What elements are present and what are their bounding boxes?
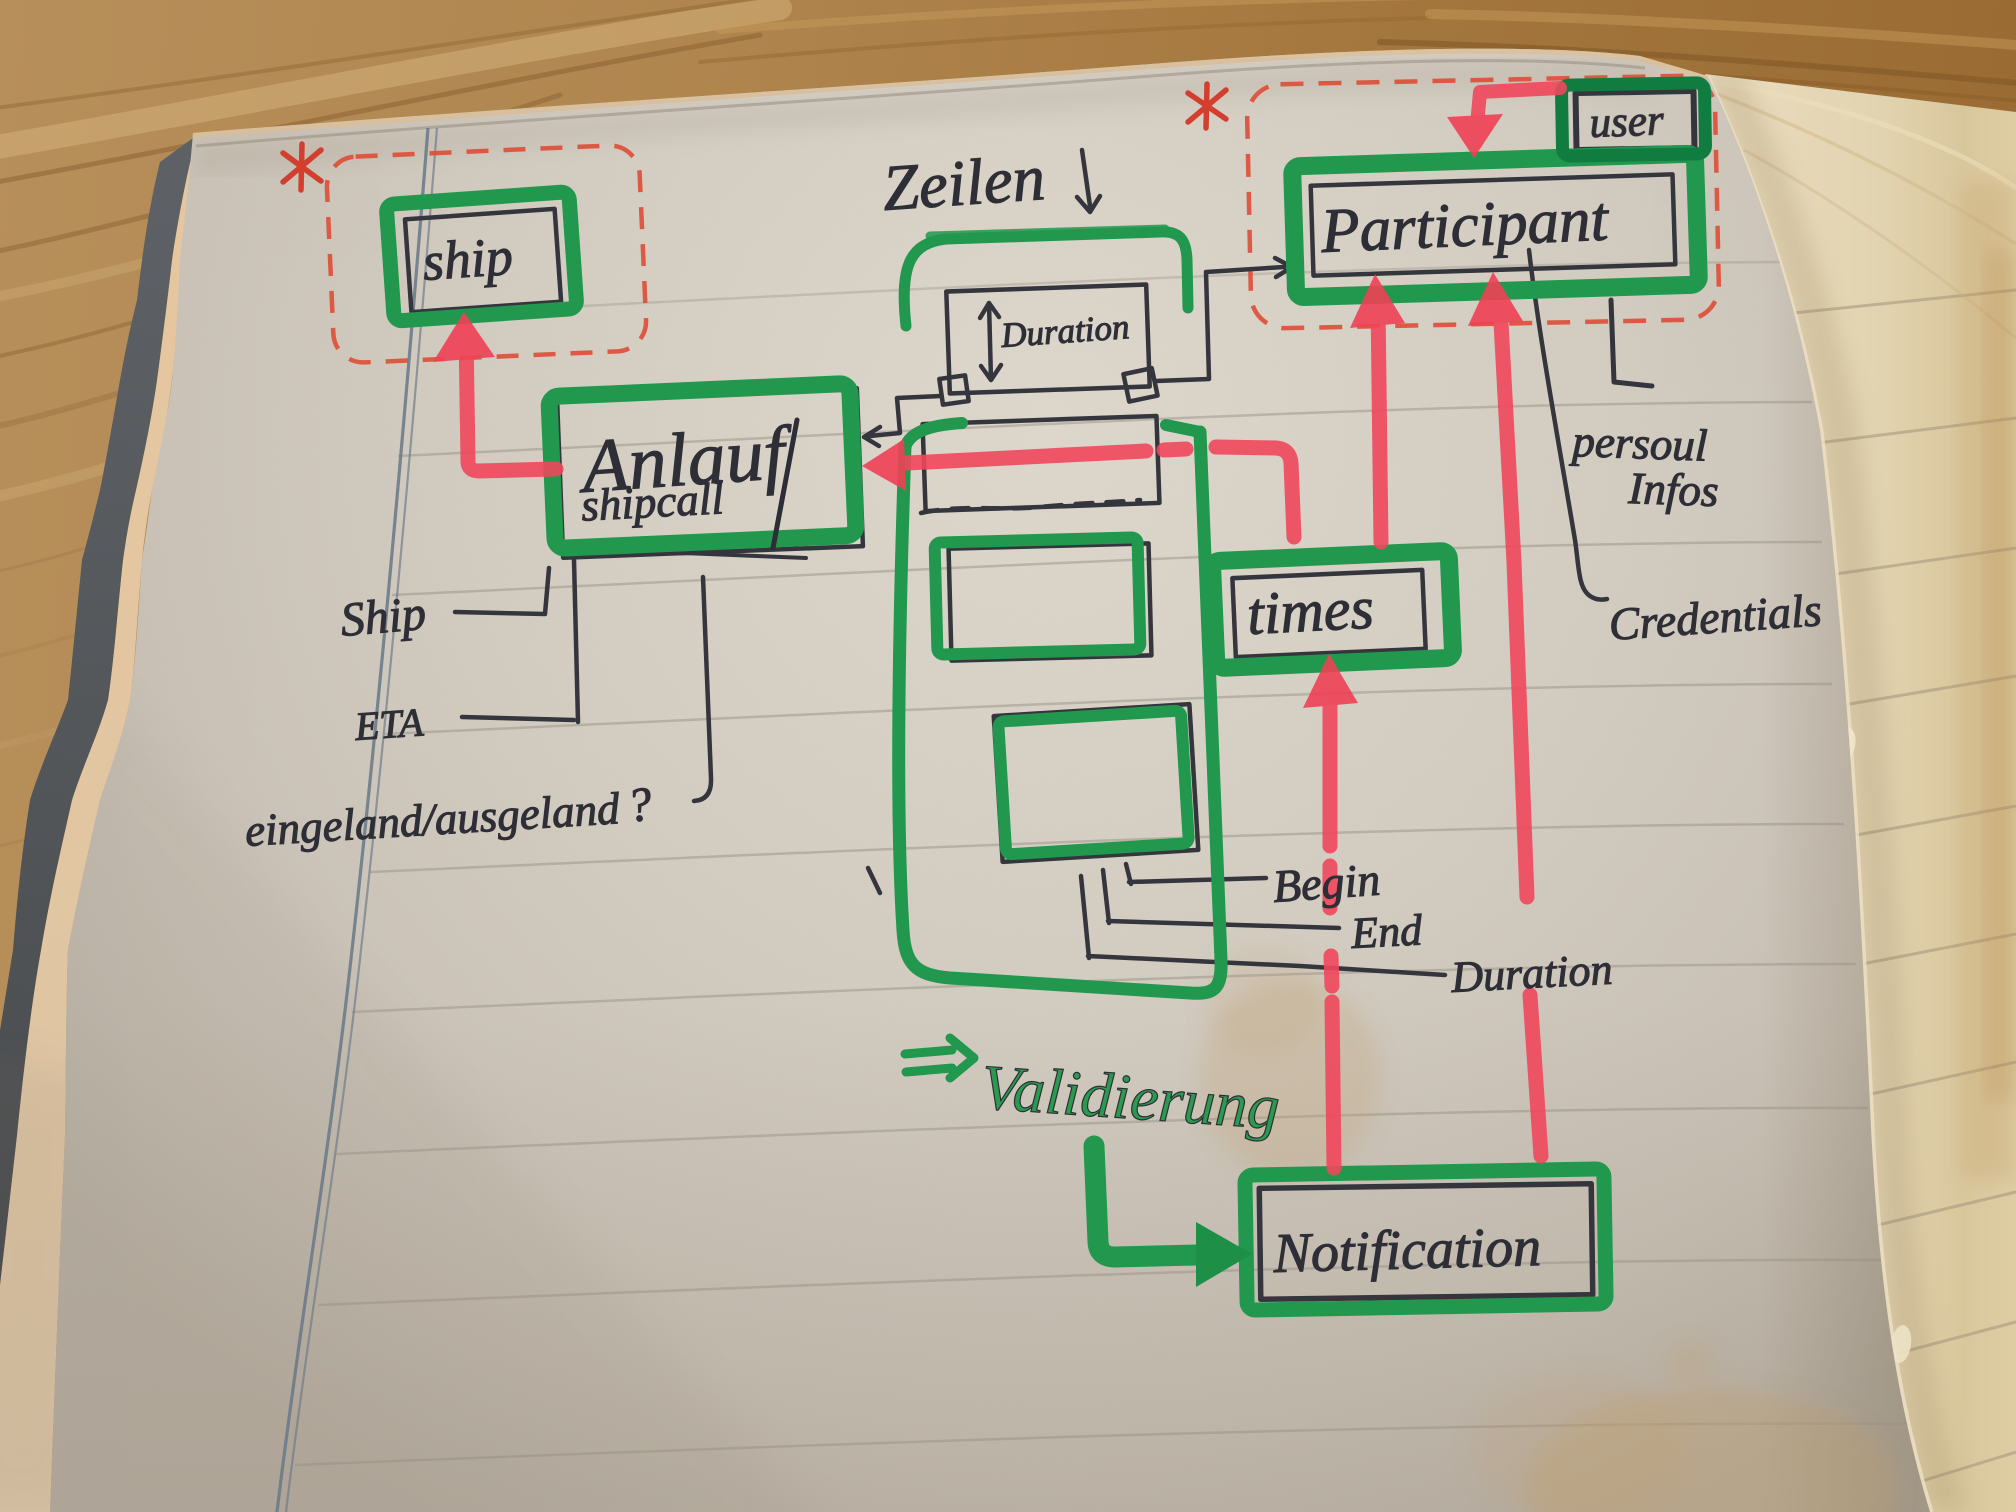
svg-text:Ship: Ship <box>338 587 428 647</box>
svg-text:Begin: Begin <box>1271 854 1382 912</box>
svg-text:Duration: Duration <box>1449 945 1614 1002</box>
svg-text:Notification: Notification <box>1272 1216 1542 1285</box>
svg-text:shipcall: shipcall <box>580 473 725 530</box>
svg-text:ETA: ETA <box>352 699 425 749</box>
svg-text:ship: ship <box>421 226 515 292</box>
svg-text:times: times <box>1245 575 1375 648</box>
svg-text:user: user <box>1589 97 1665 147</box>
svg-text:End: End <box>1349 905 1424 958</box>
svg-text:Participant: Participant <box>1319 183 1611 266</box>
svg-text:Infos: Infos <box>1627 463 1720 516</box>
svg-text:Zeilen: Zeilen <box>880 142 1047 225</box>
